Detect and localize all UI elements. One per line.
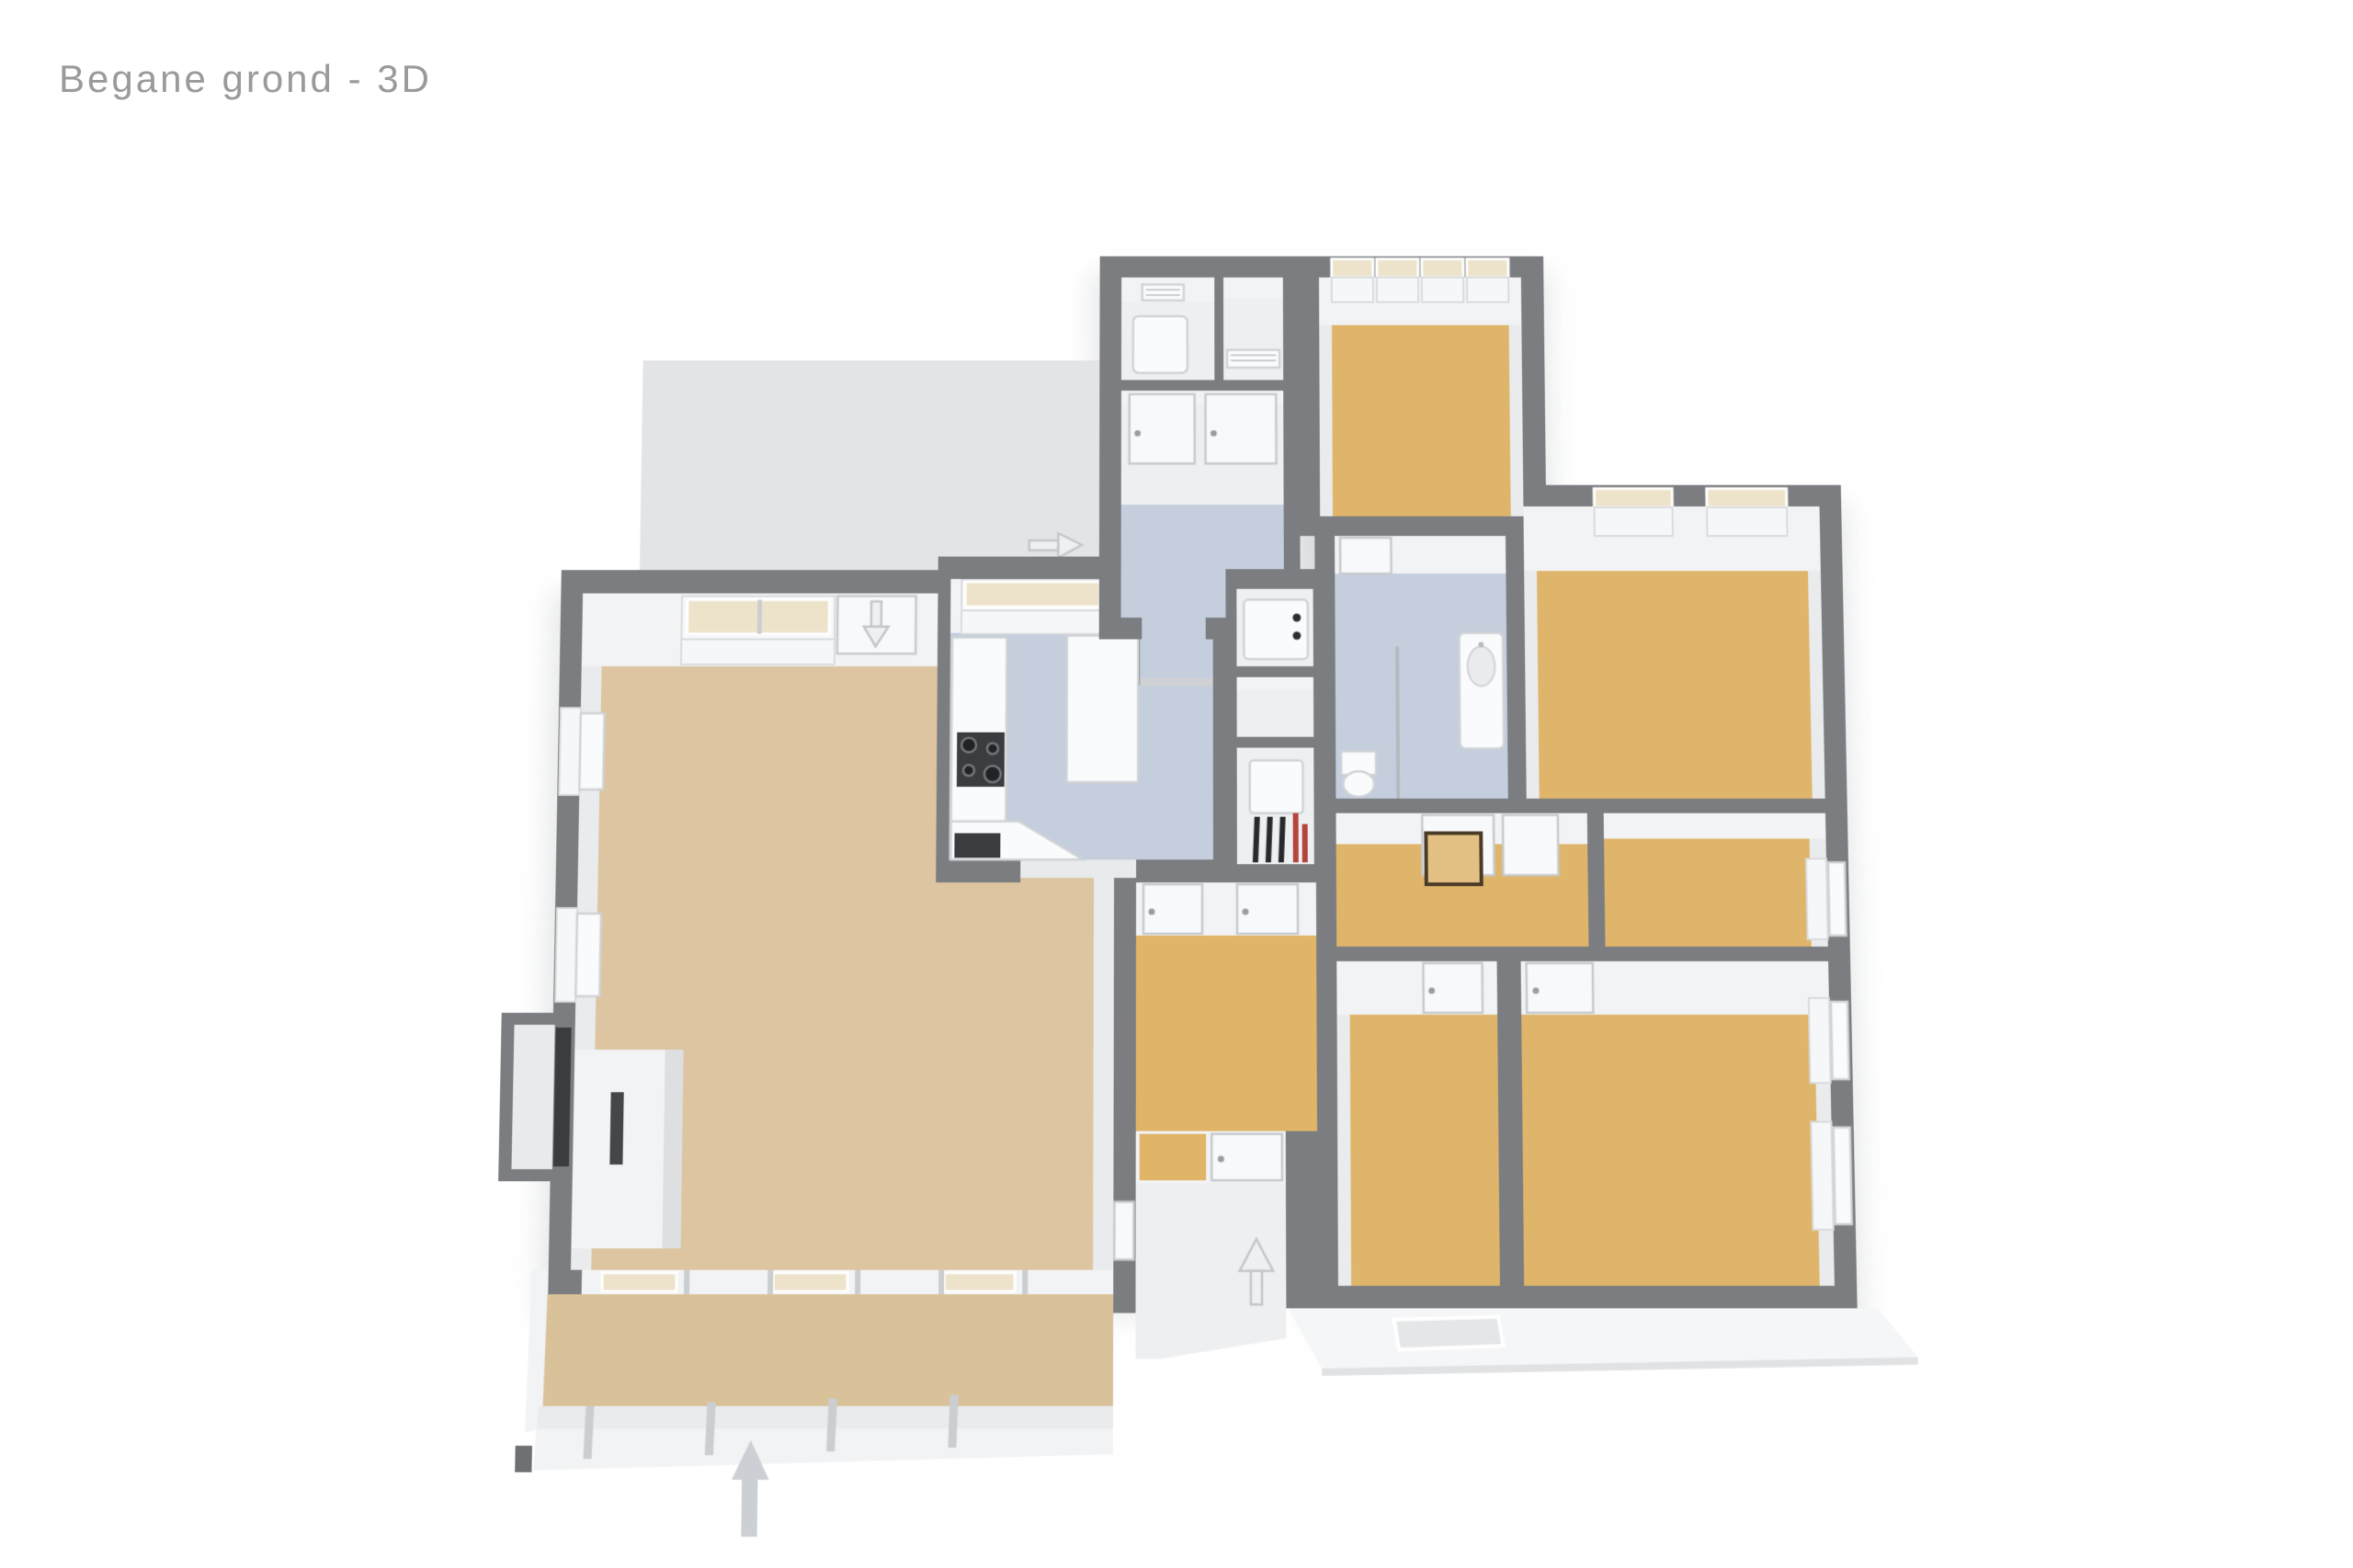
living-terrace-door (837, 597, 916, 654)
toilet-icon (1341, 751, 1376, 796)
hatch-hall-door-2 (1503, 815, 1559, 875)
patio-terrace (640, 360, 1099, 570)
bedroom-bottom-right-window-2 (1811, 1122, 1852, 1230)
utility-boiler (1237, 748, 1314, 865)
hallway (1136, 859, 1317, 1131)
bedroom-bottom-right-window-1 (1809, 998, 1849, 1083)
back-hall-door-2 (1206, 394, 1277, 463)
bedroom-right-top-window-2 (1707, 489, 1788, 537)
bedroom-right-top-window-1 (1594, 489, 1673, 537)
bedroom-right-top (1523, 489, 1824, 799)
entry-porch (1135, 1131, 1318, 1359)
bathroom (1335, 536, 1508, 799)
storage-box (1133, 316, 1188, 373)
living-hall-door (1114, 1202, 1133, 1260)
wall-shelf (1142, 285, 1184, 301)
porch-doorway-opening (1140, 1134, 1207, 1181)
boiler-icon (1250, 760, 1303, 812)
back-hall-passage (1142, 618, 1205, 640)
stove-icon (957, 733, 1005, 787)
floor-plan-canvas (0, 28, 2353, 1568)
living-window-left-2 (555, 908, 601, 1002)
bedroom-top (1299, 256, 1546, 536)
bedroom-bottom-right (1521, 961, 1854, 1286)
bedroom-right-middle-window (1806, 858, 1847, 939)
utility-washer (1236, 589, 1313, 666)
living-window-top (681, 597, 835, 665)
sink-icon (1459, 633, 1504, 749)
conservatory-corner-post (515, 1446, 532, 1472)
washing-machine-icon (1244, 599, 1308, 659)
utility-column (1225, 569, 1334, 882)
paper-ledge (1227, 350, 1279, 368)
conservatory (515, 1270, 1113, 1472)
right-wing (1285, 485, 1918, 1376)
kitchen-island (1066, 636, 1138, 782)
utility-middle (1237, 677, 1314, 737)
bathroom-door (1340, 538, 1392, 574)
bedroom-bottom-left (1336, 961, 1500, 1286)
conservatory-door-band (582, 1270, 1114, 1294)
storage-right (1223, 278, 1283, 381)
back-hall-door-1 (1130, 394, 1195, 463)
bedroom-right-middle (1604, 813, 1847, 947)
front-stoop (1288, 1308, 1918, 1376)
kitchen-window (961, 580, 1104, 634)
page: Begane grond - 3D (0, 0, 2353, 1568)
floor-plan-3d-view (0, 28, 2353, 1568)
storage-left (1121, 278, 1214, 381)
floor-hatch (1426, 834, 1481, 885)
living-window-left-1 (559, 708, 604, 795)
microwave-icon (954, 834, 1000, 858)
hall-with-hatch (1336, 813, 1589, 947)
